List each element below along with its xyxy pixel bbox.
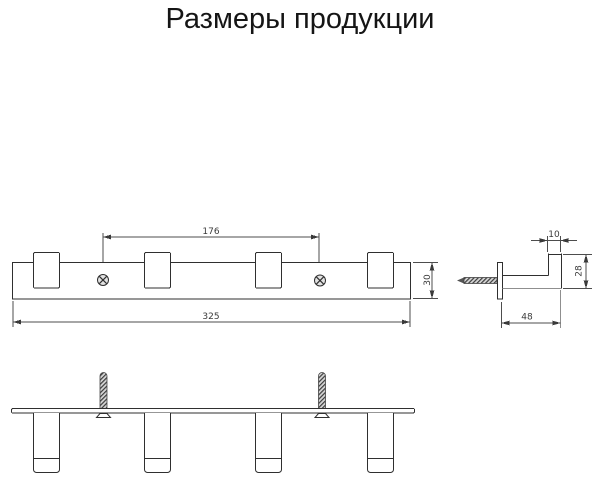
rail-plate-section	[498, 263, 503, 300]
arrowhead-top	[584, 255, 589, 263]
arrowhead-left	[502, 321, 510, 326]
arrowhead-left	[103, 235, 111, 240]
hook-2-front	[145, 253, 171, 289]
front-view: 176	[13, 227, 439, 327]
screw-shank	[464, 278, 497, 284]
arrowhead-right	[553, 321, 561, 326]
arrowhead-top	[430, 263, 435, 271]
technical-drawing: 176	[0, 0, 600, 480]
dim-label-screw-spacing: 176	[202, 227, 219, 237]
arrowhead-bottom	[584, 281, 589, 289]
screw-head	[97, 414, 111, 418]
dimension-drawing-page: Размеры продукции 176	[0, 0, 600, 480]
screw-shank	[319, 373, 326, 410]
hook-4-bottom	[368, 413, 394, 473]
screw-head-left	[98, 275, 109, 286]
hook-4-front	[368, 253, 394, 289]
side-screw	[457, 278, 497, 284]
hooks-bottom	[34, 413, 394, 473]
arrowhead-left	[540, 238, 548, 243]
hook-2-bottom	[145, 413, 171, 473]
hook-profile	[503, 254, 562, 289]
hook-3-bottom	[256, 413, 282, 473]
screw-tip	[457, 278, 464, 284]
dim-label-rail-height: 30	[423, 274, 433, 286]
screw-head-right	[315, 275, 326, 286]
rail-plate-bottom	[12, 409, 415, 414]
hook-3-front	[256, 253, 282, 289]
arrowhead-left	[13, 320, 21, 325]
arrowhead-right	[561, 238, 569, 243]
dim-label-total-length: 325	[202, 312, 219, 322]
hook-1-bottom	[34, 413, 60, 473]
dim-label-depth: 48	[521, 313, 533, 323]
dim-label-hook-rise: 28	[575, 265, 585, 277]
arrowhead-bottom	[430, 291, 435, 299]
screw-head	[315, 414, 329, 418]
arrowhead-right	[402, 320, 410, 325]
screw-shank	[100, 373, 107, 410]
side-view: 10 28 48	[457, 230, 592, 328]
arrowhead-right	[311, 235, 319, 240]
hook-1-front	[34, 253, 60, 289]
dim-label-hook-thickness: 10	[548, 230, 560, 240]
bottom-view	[12, 373, 415, 473]
rail-front-outline	[13, 263, 411, 300]
